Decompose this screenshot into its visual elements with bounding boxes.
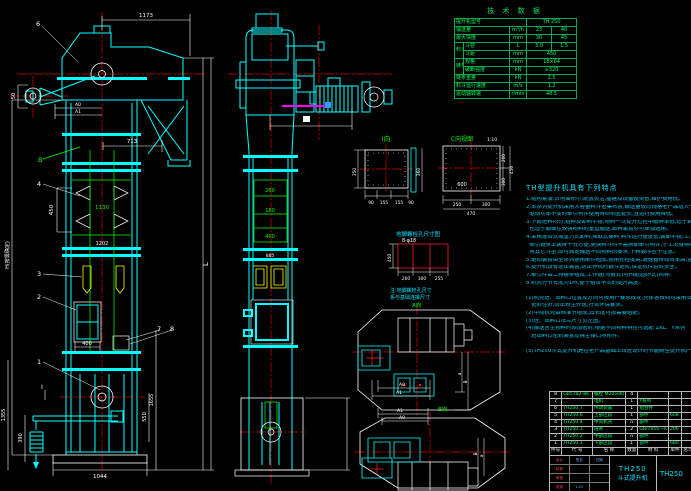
anchor-b1: 200 [402, 276, 410, 282]
boot-plan-section-label: B向 [438, 405, 447, 413]
bom-weight [668, 392, 681, 399]
section-b-label: B [38, 156, 42, 164]
view-i-b2: 155 [380, 200, 388, 206]
outlet-box [113, 336, 129, 350]
title-block-drawing-no: TH250 [657, 455, 691, 491]
view-c-b2: 300 [482, 202, 490, 208]
section-i-label: I [41, 383, 43, 391]
tech-group: 链条 [455, 59, 464, 75]
note-line: 1.结构紧凑,占地面积小,配置灵活,基建及设备投资省,维护费用低。 [526, 197, 691, 205]
tech-label: 输送量 [455, 27, 510, 35]
mid-dim-180: 180 [265, 208, 275, 214]
bom-mat: 组合件 [638, 406, 669, 413]
tech-value: 1.5 [552, 43, 577, 51]
boot-plan-outline [360, 418, 505, 488]
bom-weight [668, 420, 681, 427]
bom-weight-total [681, 399, 691, 406]
dim-1202: 1202 [96, 241, 109, 247]
head-plan-rb: B [463, 380, 469, 383]
bom-weight: 206 [668, 427, 681, 434]
table-row: 7 电机 1 Y系列 [550, 399, 691, 406]
anchor-b3: 255 [435, 276, 443, 282]
tech-label: 料斗运行速度 [455, 83, 510, 91]
table-row: 输送量 m³/h 23 40 [455, 27, 577, 35]
view-c-r1: 200 [501, 154, 507, 162]
boot-plan-cylinder [398, 462, 478, 490]
bom-name: 链条 [593, 427, 626, 434]
view-i-b3: 155 [395, 200, 403, 206]
notes-block: TH型提升机具有下列特点 1.结构紧凑,占地面积小,配置灵活,基建及设备投资省,… [526, 183, 691, 356]
bom-code: TH250.7 [562, 406, 593, 413]
view-i-b4: 90 [408, 200, 414, 206]
bom-qty: n [626, 434, 638, 441]
table-row: 2 TH250.2 中部区段 n 部件 [550, 434, 691, 441]
anchor-note-1: 注:地脚螺栓孔尺寸 [390, 287, 432, 294]
note-line: 6.提升机设有逆止装置,防止停机时链斗逆转,保证机件运转安全。 [526, 265, 691, 273]
base-plate [53, 455, 147, 463]
note-line [526, 341, 691, 349]
bom-mat: Y系列 [638, 399, 669, 406]
product-name: 斗式提升机 [618, 473, 648, 482]
bom-code: TH250.3 [562, 427, 593, 434]
table-row: 4 TH250.4 中间机壳 n 部件 [550, 420, 691, 427]
note-line: 牵引链条上装拆十分方便,更换料斗时不需拆卸牵引构件,于工况有特殊需要时可换 [526, 243, 691, 251]
tech-unit: kN [510, 67, 527, 75]
anchor-note-2: 系与基础连接尺寸 [390, 294, 430, 301]
tech-table-title: 技 术 数 据 [454, 6, 576, 16]
tech-group: 料斗 [455, 43, 464, 59]
model-number: TH250 [619, 465, 647, 473]
table-row: 斗距 mm 450 [455, 51, 577, 59]
bom-weight [668, 399, 681, 406]
table-row: 5 TH250.6 上部区段 1 部件 608 [550, 413, 691, 420]
table-row: 8 GB5782-86 螺栓 M20×80 4 [550, 392, 691, 399]
table-row: 破断强度 kN ≥320 [455, 67, 577, 75]
sig-label: 批准 [550, 483, 570, 491]
tech-unit: mm [510, 51, 527, 59]
bom-qty: 1 [626, 413, 638, 420]
flange-i-dims [354, 148, 422, 199]
boot-plan-rb: B [473, 452, 479, 455]
backstop-outer [364, 87, 384, 107]
dim-1355: 1355 [1, 409, 7, 422]
bom-code: TH250.4 [562, 420, 593, 427]
cad-sheet: 1173 713 450 1130 1202 400 1044 1355 390… [0, 0, 691, 491]
head-plan-a1: A1 [396, 390, 402, 396]
note-line: 驱动功率不变时牵引构件使用寿命明显延长,且运行费用降低。 [526, 212, 691, 220]
view-i-360: 360 [416, 168, 422, 177]
bom-table: 8 GB5782-86 螺栓 M20×80 4 7 电机 1 Y系列 6 TH2… [549, 391, 691, 456]
dim-713: 713 [127, 139, 138, 145]
head-plan-a0: A0 [399, 382, 405, 388]
flange-c-bolts [446, 149, 497, 188]
mid-dim-400: 400 [265, 234, 275, 240]
bom-weight-total [681, 441, 691, 448]
note-line: (3)进、出料口法兰尺寸见左图。 [526, 319, 691, 327]
plan-center-crosses [366, 350, 384, 475]
bom-code: TH250.2 [562, 434, 593, 441]
bom-name: 上部区段 [593, 413, 626, 420]
backstop-hub [370, 93, 378, 101]
table-row: 料斗运行速度 m/s 1.2 [455, 83, 577, 91]
bom-weight-total [681, 434, 691, 441]
bom-weight [668, 434, 681, 441]
note-line: 8.机壳分节长度为1m,便于组合不同的提升高度。 [526, 281, 691, 289]
dim-1655: 1655 [149, 394, 155, 407]
view-i-350: 350 [352, 168, 358, 177]
bom-code: TH250.6 [562, 413, 593, 420]
view-c-b3: 470 [467, 211, 475, 217]
mid-door-outer [251, 300, 293, 344]
balloon-1: 1 [37, 358, 41, 366]
note-line: 7.牵引件由二排链条组成,工作链(弯板式)与H链(圆环式)两种。 [526, 273, 691, 281]
tech-unit: m/s [510, 83, 527, 91]
table-row: 1 TH250.1 下部区段 1 部件 680 [550, 441, 691, 448]
tech-value: 450 [527, 51, 577, 59]
tech-value: 45 [552, 35, 577, 43]
title-block-name: TH250 斗式提升机 [610, 455, 657, 491]
view-c-r3: 450 [509, 166, 515, 174]
bom-qty: 1 [626, 399, 638, 406]
anchor-450: 450 [387, 254, 393, 262]
anchor-holes: 8-φ18 [402, 238, 416, 244]
anchor-title: 地脚螺栓孔尺寸图 [396, 230, 441, 238]
view-c-r2: 300 [501, 178, 507, 186]
tech-value: 3.0 [527, 43, 552, 51]
tech-value: 2.5 [527, 75, 577, 83]
mid-boot-box [241, 398, 303, 470]
note-line: 3.下部进料均匀,给料及卸料平稳,物料一次提升过程中破碎率低,适于颗粒状及小块状… [526, 220, 691, 228]
tech-label: 斗容 [464, 43, 510, 51]
tech-label: 规格 [464, 59, 510, 67]
flange-i-side [411, 148, 416, 192]
scale-value: 1:20 [570, 483, 590, 491]
bom-code: GB5782-86 [562, 392, 593, 399]
title-block-signatures: 设计 签名 日期 校核 审核 批准 1:20 [549, 455, 610, 491]
view-i-b1: 90 [368, 200, 374, 206]
dim-50: 50 [11, 93, 17, 99]
yellow-buckets [83, 266, 286, 293]
bom-mat: 部件 [638, 413, 669, 420]
head-plan-dims [372, 352, 471, 410]
view-c-title: C向视图 [451, 135, 473, 143]
tech-label: 破断强度 [464, 67, 510, 75]
view-c-b1: 250 [453, 202, 461, 208]
tech-value: ≥320 [527, 67, 577, 75]
note-line: 用其它斗型,即可满足输送不同物料的要求,下料顺序应予注意。 [526, 250, 691, 258]
dim-550: 550 [142, 412, 148, 422]
head-plan-section-label: A向 [412, 301, 421, 309]
tech-value: 30 [527, 35, 552, 43]
tech-label: 链条重量 [455, 75, 510, 83]
note-line: 2.本系列提升机采用大容量料斗密集布置,输送量较同规格老产品增大一倍,提升高度及 [526, 205, 691, 213]
table-row: 驱动轴转速 r/min 48.5 [455, 91, 577, 99]
takeup-arrow [33, 462, 39, 469]
bom-no: 2 [550, 434, 562, 441]
bom-no: 6 [550, 406, 562, 413]
bom-weight-total [681, 392, 691, 399]
table-row: 提升机型号 TH 250 [455, 19, 577, 27]
bom-no: 4 [550, 420, 562, 427]
tech-label: 提升机型号 [455, 19, 527, 27]
tech-value: TH 250 [527, 19, 577, 27]
sig-label: 设计 [550, 456, 570, 464]
mid-base-plate [235, 470, 309, 476]
balloon-6: 6 [36, 20, 40, 28]
note-line: (4)输送含尘物料时须加密封,根据不同物料特性可选配 ZKL、Y系列 [526, 326, 691, 334]
dim-a0: A0 [75, 102, 81, 108]
balloon-2: 2 [37, 293, 41, 301]
bom-no: 5 [550, 413, 562, 420]
bom-code: TH250.1 [562, 441, 593, 448]
bom-weight-total [681, 420, 691, 427]
bom-name: 电机 [593, 399, 626, 406]
sig-col: 日期 [590, 456, 609, 464]
balloon-7: 7 [157, 325, 161, 333]
bom-name: 中部区段 [593, 434, 626, 441]
title-block: 设计 签名 日期 校核 审核 批准 1:20 TH250 斗式提升机 TH250 [549, 455, 691, 490]
mid-dim-lines [270, 108, 352, 470]
view-c-600: 600 [457, 182, 467, 188]
mid-dim-260: 260 [265, 188, 275, 194]
balloon-4: 4 [37, 180, 41, 188]
sig-label: 校核 [550, 465, 570, 473]
anchor-b2: 300 [418, 276, 426, 282]
note-line: (5)TH250斗式提升机是在老产品基础上改进设计的节能新型提升机产品。 [526, 349, 691, 357]
boot-plan-a0: A0 [399, 415, 405, 421]
bom-code [562, 399, 593, 406]
head-plan-outline [358, 310, 500, 410]
table-row: 6 TH250.7 传动装置 1 组合件 [550, 406, 691, 413]
bom-no: 8 [550, 392, 562, 399]
note-line: 4.采用混合式或重力式卸料,掏取式装料,料斗运行速度低,装卸平稳,工况适应性强,… [526, 235, 691, 243]
flange-bands [57, 77, 298, 371]
notes-title: TH型提升机具有下列特点 [526, 183, 691, 193]
dim-1173: 1173 [139, 13, 153, 19]
bom-mat [638, 392, 669, 399]
dim-1044: 1044 [93, 474, 107, 480]
tech-unit: m³/h [510, 27, 527, 35]
bom-mat: 部件 [638, 434, 669, 441]
bom-name: 下部区段 [593, 441, 626, 448]
dim-blob [303, 116, 310, 122]
bom-mat: 部件 [638, 420, 669, 427]
tech-unit: r/min [510, 91, 527, 99]
view-c-scale: 1:10 [487, 137, 497, 143]
dim-height-label: H(按需确定) [4, 241, 11, 269]
flange-c-outline [443, 146, 500, 191]
note-line: (1)机壳进、出料口位置及方向可按用户要求改变,壳体各段间均采用法兰密封连接,整… [526, 296, 691, 304]
bom-no: 1 [550, 441, 562, 448]
head-plan-platform [358, 346, 434, 396]
tech-unit: mm [510, 35, 527, 43]
balloon-8: 8 [170, 325, 174, 333]
bom-weight-total [681, 413, 691, 420]
bom-weight [668, 406, 681, 413]
bom-qty: 4 [626, 392, 638, 399]
dim-1130: 1130 [95, 205, 109, 211]
drawing-number: TH250 [660, 470, 691, 478]
tech-value: 18×64 [527, 59, 577, 67]
note-line: 进出料口密封装置及除尘接口等附件。 [526, 334, 691, 342]
bom-qty: 2 [626, 427, 638, 434]
tech-unit: L [510, 43, 527, 51]
dim-450: 450 [49, 204, 55, 215]
note-line: 5.驱动装置由全系列通用部件组成,通用化程度高,减速器传动效率高,运转可靠,噪声… [526, 258, 691, 266]
tech-value: 23 [527, 27, 552, 35]
tech-label: 最大块度 [455, 35, 510, 43]
tech-data-table: 技 术 数 据 提升机型号 TH 250 输送量 m³/h 23 40 最大块度… [454, 6, 576, 99]
bom-qty: n [626, 420, 638, 427]
tech-label: 斗距 [464, 51, 510, 59]
head-plan-ra: a [458, 372, 463, 375]
tech-unit: mm [510, 59, 527, 67]
bom-weight: 680 [668, 441, 681, 448]
bom-name: 传动装置 [593, 406, 626, 413]
bom-no: 7 [550, 399, 562, 406]
bom-weight-total [681, 406, 691, 413]
note-line: 也适于磨琢性较强物料的垂直输送,卸料装置亦可单独选用。 [526, 227, 691, 235]
note-line: (2)中间机壳由标准节组成,其长度可按需要组配。 [526, 311, 691, 319]
table-row: 链条重量 kN 2.5 [455, 75, 577, 83]
note-line [526, 288, 691, 296]
boot-plan-platform [362, 438, 420, 478]
dim-a1: A1 [75, 109, 81, 115]
table-row: 料斗 斗容 L 3.0 1.5 [455, 43, 577, 51]
boot-plan-a1: A1 [397, 408, 403, 414]
mid-door-frame [244, 304, 288, 340]
mid-dim-885: 885 [266, 253, 275, 259]
head-plan-reducer [398, 318, 472, 352]
tech-value: 48.5 [527, 91, 577, 99]
balloon-3: 3 [37, 270, 41, 278]
sig-label: 审核 [550, 474, 570, 482]
bom-mat: 部件 [638, 441, 669, 448]
dim-390: 390 [18, 433, 24, 443]
view-i-title: I向 [382, 134, 390, 143]
tech-label: 驱动轴转速 [455, 91, 510, 99]
bom-mat: GB/T956—A [638, 427, 669, 434]
bom-no: 3 [550, 427, 562, 434]
plan-dot-2 [419, 384, 421, 386]
dim-length-label: L [202, 262, 210, 266]
table-row: 3 TH250.3 链条 2 GB/T956—A 206 [550, 427, 691, 434]
bom-qty: 1 [626, 441, 638, 448]
table-row: 最大块度 mm 30 45 [455, 35, 577, 43]
bom-name: 螺栓 M20×80 [593, 392, 626, 399]
tech-unit: kN [510, 75, 527, 83]
tech-value: 1.2 [527, 83, 577, 91]
tech-value: 40 [552, 27, 577, 35]
sig-col: 签名 [570, 456, 590, 464]
bom-qty: 1 [626, 406, 638, 413]
highlight-blue [325, 102, 331, 108]
dim-400: 400 [82, 341, 92, 347]
bom-name: 中间机壳 [593, 420, 626, 427]
boot-plan-ra: a [480, 454, 485, 457]
table-row: 链条 规格 mm 18×64 [455, 59, 577, 67]
bom-weight: 608 [668, 413, 681, 420]
note-line: 密封性好,防止粉尘外逸,符合环保要求。 [526, 303, 691, 311]
anchor-bolt-grid [398, 244, 448, 268]
bom-weight-total [681, 427, 691, 434]
